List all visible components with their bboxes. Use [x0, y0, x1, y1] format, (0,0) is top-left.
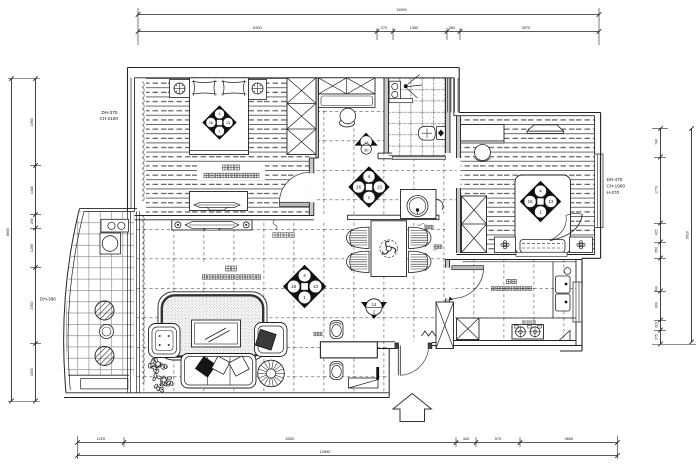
svg-text:16: 16 — [528, 199, 533, 204]
svg-text:3570: 3570 — [522, 25, 531, 30]
svg-text:3650: 3650 — [564, 436, 573, 441]
svg-text:16: 16 — [291, 284, 297, 289]
svg-text:12890: 12890 — [320, 449, 332, 454]
svg-text:275: 275 — [655, 334, 659, 340]
svg-text:440: 440 — [463, 436, 470, 441]
svg-text:13: 13 — [313, 284, 319, 289]
svg-text:270: 270 — [381, 25, 388, 30]
svg-text:2350: 2350 — [30, 301, 34, 309]
svg-text:1295: 1295 — [30, 244, 34, 252]
svg-text:1220: 1220 — [96, 436, 105, 441]
svg-text:1600: 1600 — [30, 368, 34, 376]
svg-text:8650: 8650 — [6, 228, 10, 236]
svg-text:1: 1 — [218, 129, 220, 133]
svg-text:13: 13 — [377, 185, 382, 190]
svg-text:CH-2100: CH-2100 — [100, 116, 119, 121]
svg-text:415: 415 — [655, 230, 659, 236]
svg-text:18: 18 — [364, 140, 369, 145]
svg-text:13: 13 — [548, 199, 553, 204]
svg-text:14: 14 — [372, 302, 377, 307]
svg-text:1: 1 — [303, 295, 306, 300]
svg-text:290: 290 — [30, 218, 34, 224]
svg-text:4: 4 — [303, 273, 306, 278]
svg-text:6300: 6300 — [253, 25, 262, 30]
svg-text:11990: 11990 — [396, 7, 407, 12]
svg-text:DH-470: DH-470 — [607, 177, 623, 182]
svg-text:DH-390: DH-390 — [40, 297, 56, 302]
svg-text:1770: 1770 — [655, 186, 659, 194]
svg-text:6300: 6300 — [286, 436, 295, 441]
svg-text:13: 13 — [226, 121, 230, 125]
svg-text:1950: 1950 — [30, 118, 34, 126]
svg-text:360: 360 — [449, 25, 456, 30]
svg-text:5610: 5610 — [686, 231, 690, 239]
svg-text:4: 4 — [218, 112, 220, 116]
svg-text:800: 800 — [655, 286, 659, 292]
svg-text:16: 16 — [209, 121, 213, 125]
svg-text:1440: 1440 — [30, 186, 34, 194]
svg-text:16: 16 — [356, 185, 361, 190]
svg-text:970: 970 — [495, 436, 502, 441]
svg-text:H-270: H-270 — [607, 190, 620, 195]
svg-text:350: 350 — [655, 247, 659, 253]
svg-text:CH-1900: CH-1900 — [607, 184, 626, 189]
svg-text:1350: 1350 — [410, 25, 419, 30]
svg-text:203: 203 — [655, 322, 659, 328]
svg-text:800: 800 — [655, 302, 659, 308]
svg-text:30: 30 — [364, 148, 369, 153]
svg-text:DH-370: DH-370 — [102, 110, 118, 115]
svg-text:740: 740 — [655, 139, 659, 145]
